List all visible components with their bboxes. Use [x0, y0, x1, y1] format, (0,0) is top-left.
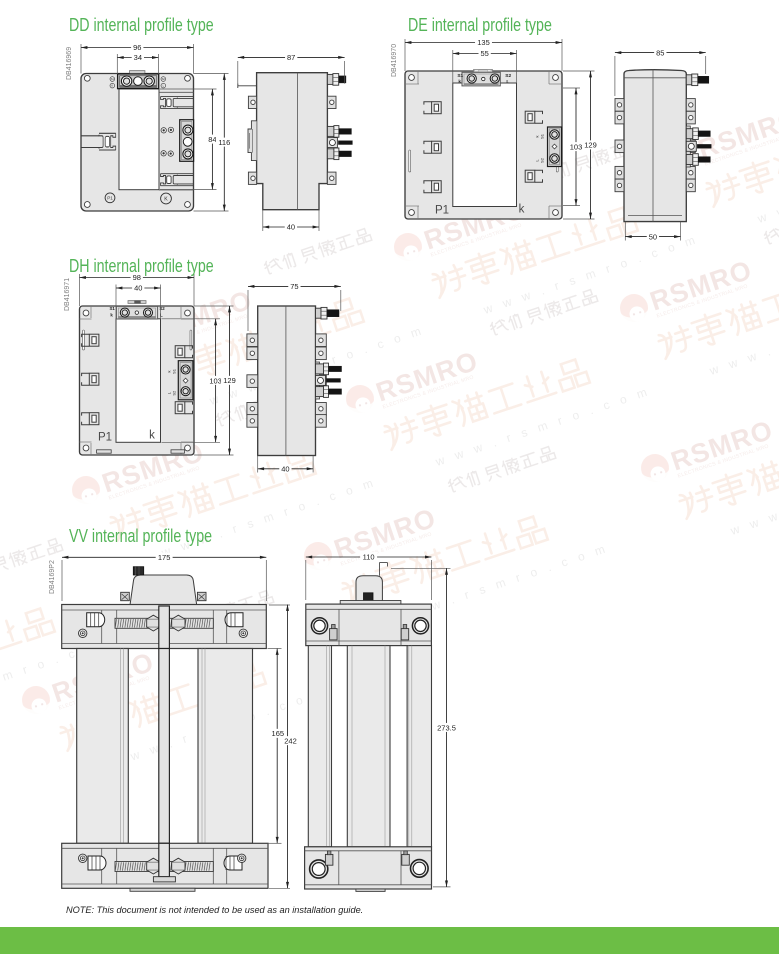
svg-text:P1: P1: [98, 432, 112, 444]
svg-text:P1: P1: [107, 196, 113, 201]
svg-text:S2: S2: [540, 157, 545, 163]
svg-text:S1: S1: [110, 306, 116, 311]
svg-text:116: 116: [218, 138, 230, 147]
svg-text:40: 40: [134, 284, 142, 293]
svg-text:129: 129: [223, 376, 236, 385]
svg-text:P1: P1: [435, 204, 449, 216]
svg-text:96: 96: [133, 43, 141, 52]
svg-text:40: 40: [281, 465, 289, 474]
svg-text:k: k: [458, 79, 461, 85]
svg-text:135: 135: [477, 38, 490, 47]
svg-text:S1: S1: [540, 133, 545, 139]
svg-text:S1: S1: [111, 77, 115, 81]
svg-text:k: k: [167, 371, 172, 373]
svg-text:103: 103: [209, 376, 222, 385]
svg-text:K: K: [111, 84, 113, 88]
svg-text:34: 34: [134, 53, 142, 62]
svg-text:242: 242: [284, 737, 297, 746]
svg-text:85: 85: [656, 48, 664, 57]
svg-text:40: 40: [287, 223, 295, 232]
svg-text:84: 84: [208, 135, 216, 144]
svg-text:L: L: [506, 79, 509, 85]
svg-text:273.5: 273.5: [437, 723, 456, 732]
svg-text:129: 129: [584, 141, 597, 150]
svg-text:k: k: [535, 136, 540, 138]
svg-text:87: 87: [287, 53, 295, 62]
svg-text:K: K: [164, 197, 168, 203]
svg-text:S2: S2: [505, 73, 511, 79]
svg-text:S1: S1: [171, 368, 176, 374]
svg-text:S2: S2: [171, 390, 176, 396]
svg-text:55: 55: [480, 49, 488, 58]
svg-text:k: k: [149, 430, 155, 442]
svg-text:S1: S1: [457, 73, 463, 79]
svg-text:50: 50: [649, 232, 657, 241]
svg-text:110: 110: [363, 553, 375, 562]
svg-text:k: k: [519, 204, 525, 216]
svg-text:S2: S2: [162, 77, 166, 81]
svg-text:103: 103: [570, 142, 583, 151]
svg-text:175: 175: [158, 553, 171, 562]
svg-text:75: 75: [290, 282, 298, 291]
